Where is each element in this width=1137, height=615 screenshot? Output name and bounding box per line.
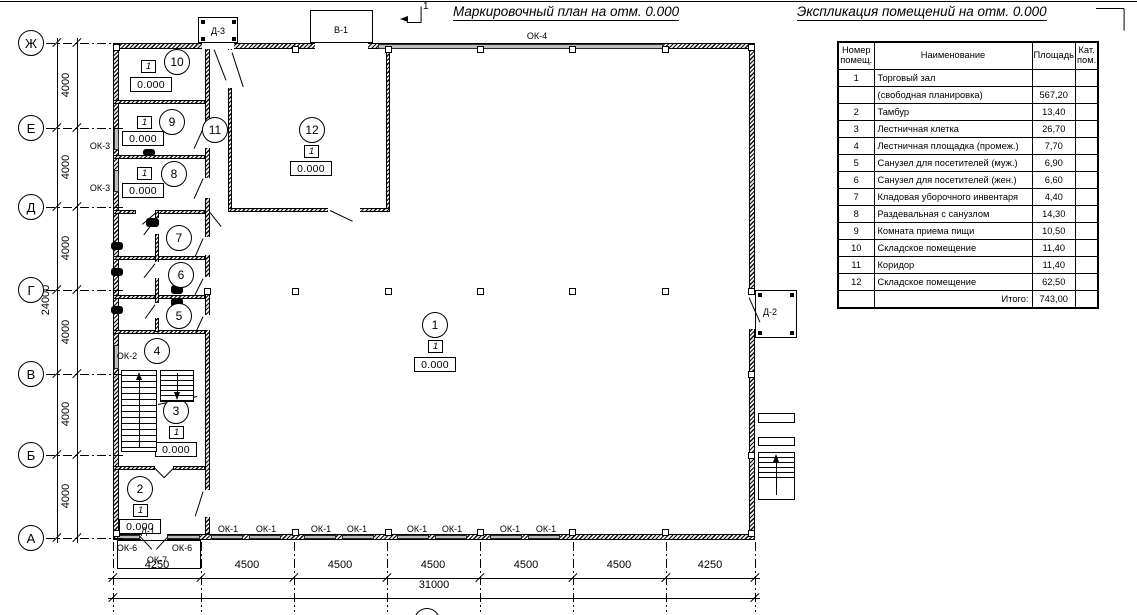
wall: [228, 208, 390, 212]
thin-line: [1123, 9, 1124, 31]
plan-label: Д-2: [763, 307, 777, 317]
door-opening: [205, 178, 210, 198]
cell-total-value: 743,00: [1032, 291, 1075, 309]
dim-label: 4000: [60, 320, 72, 344]
header-name: Наименование: [874, 42, 1032, 70]
cell-cat: [1075, 155, 1098, 172]
header-area: Площадь: [1032, 42, 1075, 70]
table-row: 2Тамбур13,40: [838, 104, 1098, 121]
axis-bubble: В: [18, 361, 44, 387]
wall: [113, 155, 205, 159]
corner-dot: [758, 293, 762, 297]
explication-table: Номер помещ.НаименованиеПлощадьКат. пом.…: [837, 41, 1099, 309]
wall: [113, 100, 205, 104]
wall: [113, 256, 205, 260]
cell-cat: [1075, 257, 1098, 274]
stair-flight-tread: [122, 447, 156, 448]
cell-num: [838, 291, 874, 309]
plan-label: ОК-1: [218, 524, 238, 534]
column: [748, 530, 755, 537]
plan-label: Д-1: [141, 526, 155, 536]
wall: [386, 48, 390, 212]
thin-line: [420, 7, 421, 23]
room-number-bubble: 11: [202, 117, 228, 143]
wall: [113, 466, 155, 470]
table-row: 8Раздевальная с санузлом14,30: [838, 206, 1098, 223]
column: [748, 44, 755, 51]
column: [569, 46, 576, 53]
dim-label: 4500: [421, 559, 445, 571]
cell-cat: [1075, 291, 1098, 309]
door-opening: [315, 43, 368, 49]
sanitary-fixture: [143, 149, 155, 156]
arrow-down-icon: [174, 392, 180, 400]
table-row: 11Коридор11,40: [838, 257, 1098, 274]
table-row: 7Кладовая уборочного инвентаря4,40: [838, 189, 1098, 206]
door-opening: [205, 490, 210, 517]
column: [385, 529, 392, 536]
column: [662, 529, 669, 536]
cell-num: 1: [838, 70, 874, 87]
elevation-mark: 0.000: [414, 357, 456, 372]
elevation-mark: 0.000: [155, 442, 197, 457]
door-opening: [205, 315, 210, 330]
cell-cat: [1075, 121, 1098, 138]
door-opening: [205, 237, 210, 255]
column: [385, 46, 392, 53]
room-number-bubble: 4: [144, 338, 170, 364]
cell-cat: [1075, 206, 1098, 223]
table-row: (свободная планировка)567,20: [838, 87, 1098, 104]
cell-num: 11: [838, 257, 874, 274]
drawing-sheet: Маркировочный план на отм. 0.000 Эксплик…: [0, 0, 1137, 615]
column: [748, 288, 755, 295]
thin-line: [194, 278, 203, 295]
dim-label: 4500: [235, 559, 259, 571]
dimension-line: [108, 598, 760, 599]
table-row: 6Санузел для посетителей (жен.)6,60: [838, 172, 1098, 189]
dim-label: 4000: [60, 155, 72, 179]
floor-type-flag: 1: [137, 116, 152, 129]
table-row: 10Складское помещение11,40: [838, 240, 1098, 257]
external-stair-arrow-stem: [776, 459, 777, 495]
column: [292, 46, 299, 53]
cell-name: Лестничная клетка: [874, 121, 1032, 138]
plan-label: ОК-4: [527, 31, 547, 41]
arrow-up-icon: [136, 372, 142, 380]
room-number-bubble: 2: [127, 476, 153, 502]
room-number-bubble: 12: [299, 117, 325, 143]
cell-area: [1032, 70, 1075, 87]
cell-name: Коридор: [874, 257, 1032, 274]
thin-line: [194, 238, 203, 256]
thin-line: [164, 468, 174, 478]
cell-name: Складское помещение: [874, 240, 1032, 257]
door-opening: [155, 262, 159, 278]
table-row: 1Торговый зал: [838, 70, 1098, 87]
corner-dot: [790, 293, 794, 297]
wall: [158, 210, 205, 214]
window: [490, 535, 522, 539]
wall: [113, 210, 136, 214]
room-number-bubble: 7: [166, 225, 192, 251]
sanitary-fixture: [146, 218, 159, 227]
cell-name: (свободная планировка): [874, 87, 1032, 104]
table-header-row: Номер помещ.НаименованиеПлощадьКат. пом.: [838, 42, 1098, 70]
cell-cat: [1075, 240, 1098, 257]
cell-area: 26,70: [1032, 121, 1075, 138]
thin-line: [194, 491, 203, 516]
cell-area: 13,40: [1032, 104, 1075, 121]
cell-name: Кладовая уборочного инвентаря: [874, 189, 1032, 206]
wall: [113, 534, 755, 540]
annex-box: [758, 437, 795, 446]
cell-name: Санузел для посетителей (жен.): [874, 172, 1032, 189]
plan-label: ОК-1: [256, 524, 276, 534]
stair-flight-arrow-stem: [177, 373, 178, 394]
cell-area: 14,30: [1032, 206, 1075, 223]
floor-type-flag: 1: [137, 167, 152, 180]
plan-label: ОК-1: [500, 524, 520, 534]
cell-cat: [1075, 172, 1098, 189]
column: [477, 529, 484, 536]
corner-dot: [758, 331, 762, 335]
plan-label: ОК-2: [117, 351, 137, 361]
table-row: 12Складское помещение62,50: [838, 274, 1098, 291]
table-row: 3Лестничная клетка26,70: [838, 121, 1098, 138]
room-number-bubble: 6: [168, 262, 194, 288]
cell-num: 2: [838, 104, 874, 121]
dim-label: 4500: [328, 559, 352, 571]
cell-total-label: Итого:: [874, 291, 1032, 309]
axis-bubble: Ж: [18, 30, 44, 56]
axis-bubble: Е: [18, 115, 44, 141]
dim-label: 4250: [698, 559, 722, 571]
thin-line: [210, 212, 222, 227]
plan-label: ОК-3: [90, 141, 110, 151]
cell-num: 9: [838, 223, 874, 240]
plan-label: ОК-3: [90, 183, 110, 193]
column: [748, 452, 755, 459]
floor-type-flag: 1: [141, 60, 156, 73]
sanitary-fixture: [111, 306, 123, 314]
window: [114, 128, 119, 150]
cell-area: 567,20: [1032, 87, 1075, 104]
cell-name: Комната приема пищи: [874, 223, 1032, 240]
thin-line: [231, 52, 243, 86]
cell-area: 62,50: [1032, 274, 1075, 291]
plan-label: В-1: [334, 25, 348, 35]
column: [748, 371, 755, 378]
cell-name: Торговый зал: [874, 70, 1032, 87]
dim-label: 4000: [60, 484, 72, 508]
room-number-bubble: 1: [422, 312, 448, 338]
column: [477, 288, 484, 295]
axis-bubble: Б: [18, 442, 44, 468]
header-cat: Кат. пом.: [1075, 42, 1098, 70]
corner-dot: [232, 20, 236, 24]
column: [385, 288, 392, 295]
floor-type-flag: 1: [133, 504, 148, 517]
explication-table-grid: Номер помещ.НаименованиеПлощадьКат. пом.…: [837, 41, 1099, 309]
cell-area: 11,40: [1032, 257, 1075, 274]
room-number-bubble: 5: [166, 303, 192, 329]
window: [397, 535, 429, 539]
cell-cat: [1075, 223, 1098, 240]
table-total-row: Итого:743,00: [838, 291, 1098, 309]
column: [569, 529, 576, 536]
annex-box: [758, 413, 795, 423]
plan-label: Д-3: [211, 26, 225, 36]
corner-dot: [232, 37, 236, 41]
thin-line: [407, 22, 421, 23]
cell-name: Тамбур: [874, 104, 1032, 121]
elevation-mark: 0.000: [130, 77, 172, 92]
cell-num: 10: [838, 240, 874, 257]
thin-line: [0, 1, 1137, 2]
column: [204, 288, 211, 295]
dimension-line: [77, 38, 78, 543]
floor-type-flag: 1: [169, 426, 184, 439]
corner-dot: [790, 331, 794, 335]
plan-label: ОК-1: [536, 524, 556, 534]
window: [435, 535, 467, 539]
dim-label: 4500: [607, 559, 631, 571]
cell-cat: [1075, 274, 1098, 291]
table-row: 5Санузел для посетителей (муж.)6,90: [838, 155, 1098, 172]
wall: [113, 295, 205, 299]
column: [662, 46, 669, 53]
elevation-mark: 0.000: [122, 131, 164, 146]
dim-total-label: 31000: [419, 579, 450, 591]
column: [662, 288, 669, 295]
cell-num: 4: [838, 138, 874, 155]
cell-num: 12: [838, 274, 874, 291]
plan-label: ОК-6: [117, 543, 137, 553]
cell-area: 6,60: [1032, 172, 1075, 189]
window: [249, 535, 281, 539]
cell-num: 3: [838, 121, 874, 138]
window: [114, 170, 119, 192]
cell-cat: [1075, 138, 1098, 155]
window: [378, 44, 663, 49]
corner-dot: [201, 20, 205, 24]
wall: [113, 330, 205, 334]
cell-cat: [1075, 104, 1098, 121]
cell-area: 6,90: [1032, 155, 1075, 172]
window: [342, 535, 374, 539]
dim-label: 4000: [60, 402, 72, 426]
floor-type-flag: 1: [304, 145, 319, 158]
cell-num: [838, 87, 874, 104]
window: [304, 535, 336, 539]
cell-name: Раздевальная с санузлом: [874, 206, 1032, 223]
cell-num: 7: [838, 189, 874, 206]
cell-area: 10,50: [1032, 223, 1075, 240]
plan-label: ОК-1: [407, 524, 427, 534]
sanitary-fixture: [111, 242, 123, 250]
cell-name: Санузел для посетителей (муж.): [874, 155, 1032, 172]
dim-label: 4000: [60, 236, 72, 260]
cell-area: 7,70: [1032, 138, 1075, 155]
door-opening: [202, 43, 234, 49]
cell-name: Лестничная площадка (промеж.): [874, 138, 1032, 155]
elevation-mark: 0.000: [290, 161, 332, 176]
window: [211, 535, 243, 539]
plan-label: ОК-7: [147, 555, 167, 565]
axis-bubble: Д: [18, 194, 44, 220]
room-number-bubble: 10: [164, 49, 190, 75]
cell-num: 6: [838, 172, 874, 189]
table-row: 9Комната приема пищи10,50: [838, 223, 1098, 240]
column: [292, 529, 299, 536]
column: [477, 46, 484, 53]
table-row: 4Лестничная площадка (промеж.)7,70: [838, 138, 1098, 155]
floor-type-flag: 1: [428, 340, 443, 353]
column: [569, 288, 576, 295]
cell-cat: [1075, 70, 1098, 87]
stair-flight-tread: [161, 400, 193, 401]
section-arrow-icon: [400, 16, 408, 22]
cell-num: 8: [838, 206, 874, 223]
plan-label: ОК-1: [311, 524, 331, 534]
plan-label: ОК-1: [347, 524, 367, 534]
cell-num: 5: [838, 155, 874, 172]
room-number-bubble: 8: [161, 161, 187, 187]
plan-label: ОК-6: [172, 543, 192, 553]
cell-cat: [1075, 87, 1098, 104]
stair-flight-arrow-stem: [139, 377, 140, 447]
axis-bubble: А: [18, 525, 44, 551]
column: [113, 44, 120, 51]
column: [292, 288, 299, 295]
window: [528, 535, 560, 539]
wall: [173, 466, 205, 470]
elevation-mark: 0.000: [122, 183, 164, 198]
arrow-up-icon: [773, 454, 779, 462]
thin-line: [145, 304, 156, 319]
dim-label: 4500: [514, 559, 538, 571]
cell-cat: [1075, 189, 1098, 206]
plan-label: ОК-1: [442, 524, 462, 534]
axis-bubble-partial: 1: [414, 608, 440, 615]
dim-label: 4000: [60, 73, 72, 97]
header-num: Номер помещ.: [838, 42, 874, 70]
sanitary-fixture: [111, 268, 123, 276]
door-opening: [155, 303, 159, 318]
window: [167, 535, 200, 539]
thin-line: [144, 263, 156, 278]
dimension-line: [57, 38, 58, 543]
cell-area: 4,40: [1032, 189, 1075, 206]
corner-dot: [201, 37, 205, 41]
cell-area: 11,40: [1032, 240, 1075, 257]
thin-line: [213, 49, 226, 80]
thin-line: [1096, 8, 1124, 9]
cell-name: Складское помещение: [874, 274, 1032, 291]
axis-bubble: Г: [18, 277, 44, 303]
thin-line: [193, 178, 203, 198]
